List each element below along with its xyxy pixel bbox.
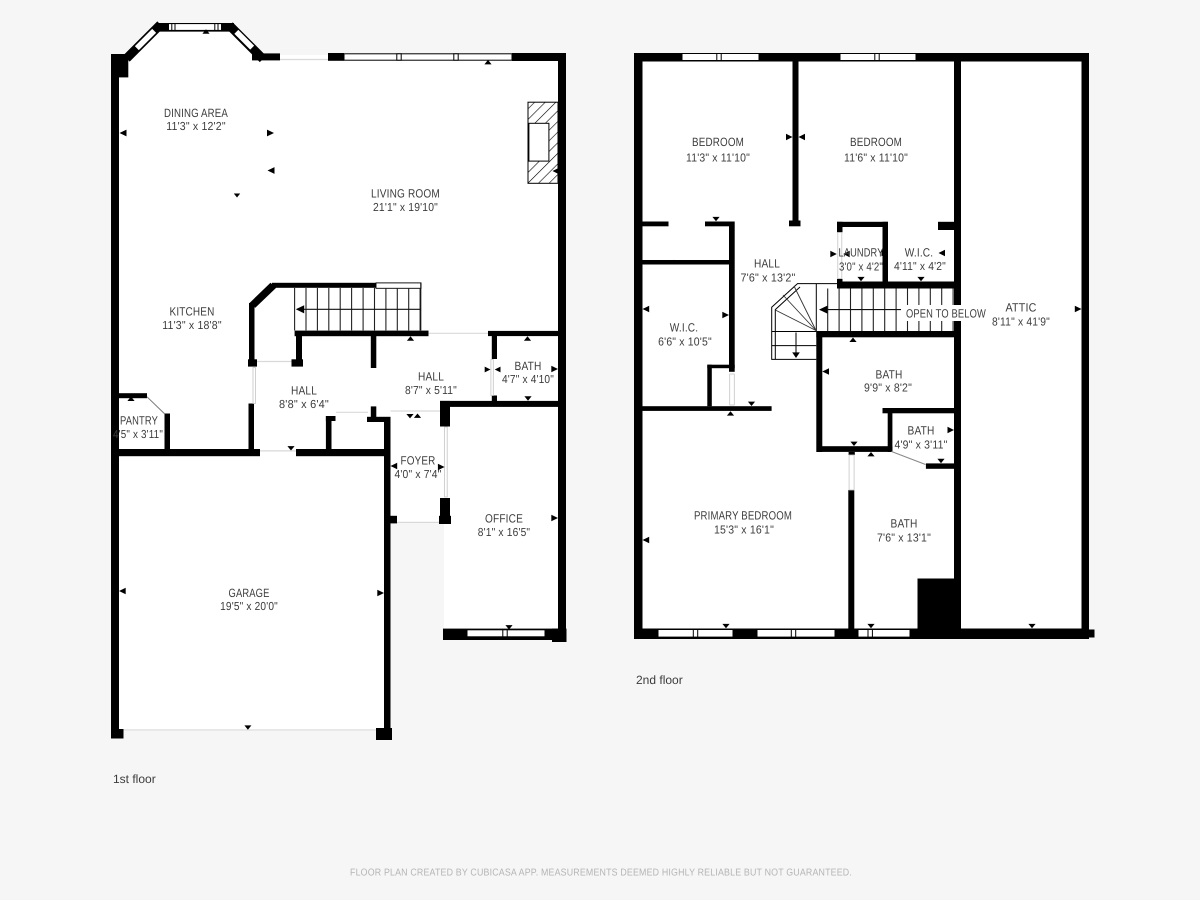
svg-text:FOYER: FOYER xyxy=(401,454,436,468)
svg-text:11'6" x 11'10": 11'6" x 11'10" xyxy=(844,152,908,165)
svg-text:3'0" x 4'2": 3'0" x 4'2" xyxy=(839,261,883,274)
svg-text:4'9" x 3'11": 4'9" x 3'11" xyxy=(895,439,948,452)
svg-text:11'3" x 11'10": 11'3" x 11'10" xyxy=(686,152,750,165)
svg-text:BEDROOM: BEDROOM xyxy=(692,135,744,149)
svg-text:19'5" x 20'0": 19'5" x 20'0" xyxy=(220,600,278,613)
svg-text:W.I.C.: W.I.C. xyxy=(670,321,699,335)
svg-text:11'3" x 18'8": 11'3" x 18'8" xyxy=(162,319,222,332)
svg-text:2nd floor: 2nd floor xyxy=(636,673,683,687)
svg-text:KITCHEN: KITCHEN xyxy=(170,305,215,319)
svg-text:BEDROOM: BEDROOM xyxy=(850,135,902,149)
svg-text:8'8" x 6'4": 8'8" x 6'4" xyxy=(279,398,329,411)
svg-text:LAUNDRY: LAUNDRY xyxy=(839,246,884,260)
svg-text:HALL: HALL xyxy=(291,384,317,398)
svg-text:BATH: BATH xyxy=(908,424,935,438)
svg-text:GARAGE: GARAGE xyxy=(229,586,270,600)
svg-text:OFFICE: OFFICE xyxy=(485,512,523,526)
svg-text:PANTRY: PANTRY xyxy=(120,414,158,428)
svg-text:7'6" x 13'2": 7'6" x 13'2" xyxy=(741,272,796,285)
svg-text:HALL: HALL xyxy=(754,257,780,271)
svg-text:9'9" x 8'2": 9'9" x 8'2" xyxy=(864,382,912,395)
svg-text:7'6" x 13'1": 7'6" x 13'1" xyxy=(877,532,931,545)
svg-text:8'1" x 16'5": 8'1" x 16'5" xyxy=(478,526,531,539)
svg-text:8'7" x 5'11": 8'7" x 5'11" xyxy=(405,384,457,397)
svg-text:ATTIC: ATTIC xyxy=(1006,301,1037,315)
svg-text:LIVING ROOM: LIVING ROOM xyxy=(371,187,440,201)
svg-text:HALL: HALL xyxy=(418,370,444,384)
svg-text:4'7" x 4'10": 4'7" x 4'10" xyxy=(502,373,554,386)
svg-text:4'0" x 7'4": 4'0" x 7'4" xyxy=(395,468,442,481)
svg-text:4'5" x 3'11": 4'5" x 3'11" xyxy=(113,428,163,441)
svg-text:FLOOR PLAN CREATED BY CUBICASA: FLOOR PLAN CREATED BY CUBICASA APP. MEAS… xyxy=(350,868,852,879)
svg-text:6'6" x 10'5": 6'6" x 10'5" xyxy=(658,336,712,349)
svg-text:11'3" x 12'2": 11'3" x 12'2" xyxy=(166,120,226,133)
svg-text:BATH: BATH xyxy=(515,359,542,373)
svg-text:21'1" x 19'10": 21'1" x 19'10" xyxy=(373,201,438,214)
svg-text:BATH: BATH xyxy=(876,368,903,382)
svg-text:W.I.C.: W.I.C. xyxy=(905,246,934,260)
svg-text:BATH: BATH xyxy=(891,517,918,531)
svg-text:8'11" x 41'9": 8'11" x 41'9" xyxy=(992,316,1050,329)
svg-text:1st floor: 1st floor xyxy=(113,772,156,786)
svg-text:OPEN TO BELOW: OPEN TO BELOW xyxy=(906,307,986,321)
svg-text:4'11" x 4'2": 4'11" x 4'2" xyxy=(894,260,946,273)
svg-text:DINING AREA: DINING AREA xyxy=(164,106,228,120)
svg-text:15'3" x 16'1": 15'3" x 16'1" xyxy=(714,524,774,537)
svg-text:PRIMARY BEDROOM: PRIMARY BEDROOM xyxy=(694,509,792,523)
